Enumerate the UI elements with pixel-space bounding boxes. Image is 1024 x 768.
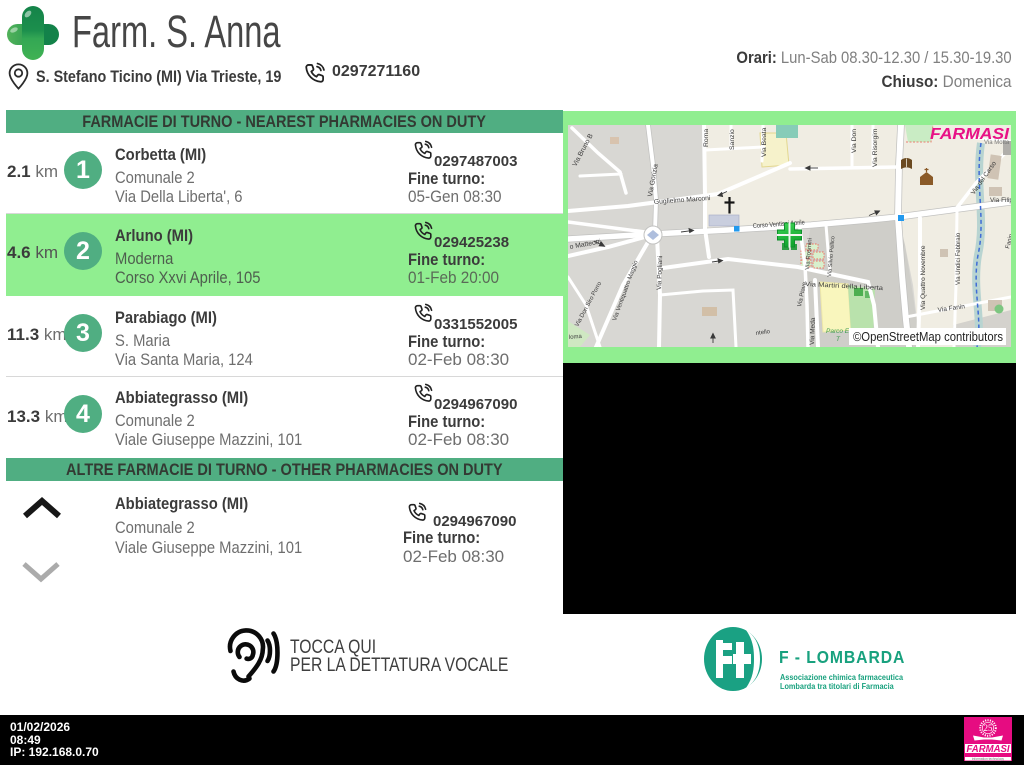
svg-text:information technology: information technology <box>972 757 1004 761</box>
svg-text:FARMASI: FARMASI <box>967 744 1010 755</box>
svg-text:Sanzio: Sanzio <box>729 129 736 150</box>
svg-text:Roma: Roma <box>703 129 710 147</box>
svg-text:Via Pogliani: Via Pogliani <box>656 256 664 290</box>
svg-text:Via Beata: Via Beata <box>761 127 768 157</box>
svg-text:Via Undici Febbraio: Via Undici Febbraio <box>956 232 962 285</box>
svg-text:Via Filip: Via Filip <box>990 197 1011 204</box>
svg-text:©OpenStreetMap contributors: ©OpenStreetMap contributors <box>853 330 1003 344</box>
svg-text:25: 25 <box>984 723 994 733</box>
svg-text:Via Don: Via Don <box>851 129 858 153</box>
svg-text:Via Risorgim: Via Risorgim <box>872 128 879 167</box>
svg-text:Via Quattro Novembre: Via Quattro Novembre <box>920 245 927 310</box>
svg-text:FARMASI: FARMASI <box>930 126 1010 143</box>
svg-text:Via Meda: Via Meda <box>809 317 817 345</box>
svg-text:loma: loma <box>569 334 583 341</box>
